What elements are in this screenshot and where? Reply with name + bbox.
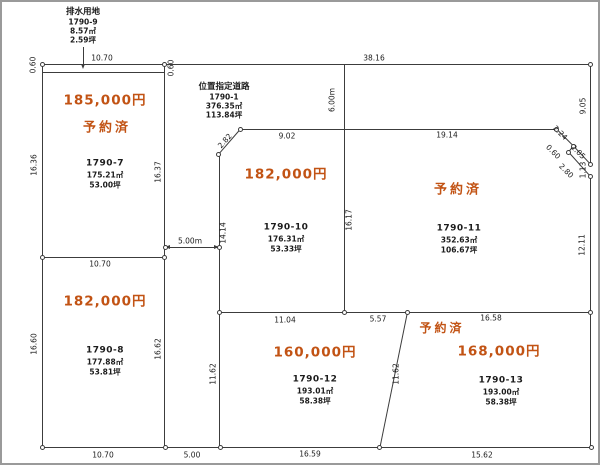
drainage-id: 1790-9 — [68, 18, 97, 26]
dim-lot12-west: 11.62 — [209, 363, 217, 384]
vertex-marker — [40, 255, 45, 260]
dim-mid-seg2: 5.57 — [370, 315, 387, 323]
road-title: 位置指定道路 — [198, 83, 249, 92]
land-plot-diagram: 排水用地 1790-9 8.57㎡ 2.59坪 位置指定道路 1790-1 37… — [0, 0, 600, 465]
vertex-marker — [163, 245, 168, 250]
vertex-marker — [405, 310, 410, 315]
lot10-lot11-divider — [344, 64, 345, 312]
dim-bottom3: 16.59 — [299, 450, 320, 458]
drainage-leader-line — [83, 47, 84, 65]
vertex-marker — [588, 62, 593, 67]
dim-left-lower: 16.60 — [30, 333, 38, 354]
lot8-price: 182,000円 — [64, 295, 147, 309]
dim-strip-right: 0.60 — [167, 60, 175, 77]
drainage-title: 排水用地 — [66, 8, 100, 17]
dim-lot7-east: 16.37 — [154, 161, 162, 182]
lot10-area: 176.31㎡ — [268, 235, 304, 243]
vertex-marker — [218, 445, 223, 450]
lot13-status-badge: 予約済 — [419, 322, 464, 334]
dim-ne-cut-c: 0.60 — [544, 143, 561, 160]
lot12-id: 1790-12 — [293, 376, 338, 385]
lot12-area: 193.01㎡ — [297, 387, 333, 395]
vertex-marker — [588, 310, 593, 315]
dim-lot10-top: 9.02 — [279, 132, 296, 140]
vertex-marker — [162, 255, 167, 260]
vertex-marker — [216, 152, 221, 157]
dim-bottom1: 10.70 — [92, 451, 113, 459]
dim-ne-cut-b: 2.05 — [569, 143, 586, 160]
lot13-area: 193.00㎡ — [483, 388, 519, 396]
vertex-marker — [40, 445, 45, 450]
dim-strip-width: 10.70 — [91, 54, 112, 62]
road-id: 1790-1 — [209, 93, 238, 101]
lot13-tsubo: 58.38坪 — [485, 398, 516, 406]
drainage-area: 8.57㎡ — [70, 27, 96, 35]
lot10-tsubo: 53.33坪 — [270, 245, 301, 253]
dim-lot10-west: 14.14 — [219, 222, 227, 243]
lot11-area: 352.63㎡ — [441, 236, 477, 244]
dim-lot8-east: 16.62 — [154, 338, 162, 359]
dim-lot8-top: 10.70 — [89, 260, 110, 268]
lot11-status-badge: 予約済 — [434, 184, 482, 197]
dim-lot10-cut: 2.82 — [217, 132, 234, 149]
vertex-marker — [342, 310, 347, 315]
lot12-price: 160,000円 — [274, 346, 357, 360]
lot7-status-badge: 予約済 — [83, 122, 131, 135]
dim-mid-seg1: 11.04 — [274, 316, 295, 324]
lot10-price: 182,000円 — [245, 168, 328, 182]
dim-right-mid: 1.13 — [579, 162, 587, 179]
strip-bottom-line — [42, 72, 164, 73]
vertex-marker — [238, 127, 243, 132]
lot7-tsubo: 53.00坪 — [89, 181, 120, 189]
lot11-id: 1790-11 — [437, 225, 482, 234]
dim-bottom2: 5.00 — [184, 451, 201, 459]
lot7-lot8-divider — [42, 257, 164, 258]
vertex-marker — [217, 245, 222, 250]
right-boundary-upper — [590, 64, 591, 164]
dim-lot11-top: 19.14 — [436, 131, 457, 139]
lot8-id: 1790-8 — [86, 347, 124, 356]
dim-road-top: 38.16 — [363, 54, 384, 62]
vertex-marker — [377, 445, 382, 450]
road-strip-east-boundary — [219, 154, 220, 447]
vertex-marker — [588, 174, 593, 179]
dim-lot12-east: 11.62 — [392, 363, 400, 384]
dim-right-upper: 9.05 — [579, 98, 587, 115]
vertex-marker — [163, 445, 168, 450]
dim-ne-cut-a: 2.24 — [551, 124, 568, 141]
road-top-line — [164, 64, 591, 65]
lot7-area: 175.21㎡ — [87, 171, 123, 179]
lot13-id: 1790-13 — [479, 377, 524, 386]
lot8-tsubo: 53.81坪 — [89, 368, 120, 376]
bottom-boundary-line — [42, 447, 592, 448]
vertex-marker — [217, 310, 222, 315]
lot10-id: 1790-10 — [264, 224, 309, 233]
dim-road-strip-width: 5.00m — [178, 237, 202, 245]
dim-ne-cut-d: 2.80 — [557, 162, 574, 179]
dim-left-upper: 16.36 — [30, 154, 38, 175]
lot7-price: 185,000円 — [64, 94, 147, 108]
vertex-marker — [589, 445, 594, 450]
lot12-tsubo: 58.38坪 — [299, 397, 330, 405]
road-area: 376.35㎡ — [206, 102, 242, 110]
dim-strip-left: 0.60 — [29, 57, 37, 74]
drainage-tsubo: 2.59坪 — [70, 36, 96, 44]
vertex-marker — [40, 62, 45, 67]
strip-top-line — [42, 64, 164, 65]
lot10-top-line — [240, 129, 344, 130]
dim-mid-seg3: 16.58 — [480, 314, 501, 322]
lot7-id: 1790-7 — [86, 160, 124, 169]
vertex-marker — [588, 162, 593, 167]
dim-right-lower: 12.11 — [578, 234, 586, 255]
dim-bottom4: 15.62 — [471, 451, 492, 459]
dim-lot10-east: 16.17 — [345, 209, 353, 230]
arrow-down-icon — [81, 64, 85, 69]
road-tsubo: 113.84坪 — [206, 111, 242, 119]
road-strip-width-arrow-line — [165, 247, 219, 248]
lot8-area: 177.88㎡ — [87, 358, 123, 366]
dim-road-width: 6.00m — [328, 88, 336, 112]
lot11-tsubo: 106.67坪 — [441, 246, 477, 254]
lot13-price: 168,000円 — [458, 345, 541, 359]
